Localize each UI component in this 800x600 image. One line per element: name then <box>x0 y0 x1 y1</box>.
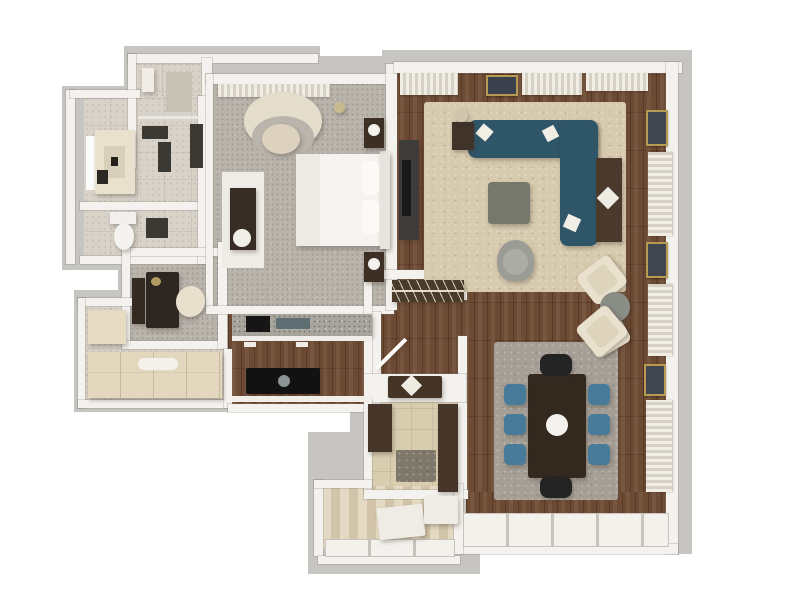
bed-headboard <box>380 151 390 249</box>
picture-dining-right <box>644 364 666 396</box>
hall-cabinet-right <box>438 404 458 492</box>
wall-office-bottom <box>122 341 226 349</box>
shower-bench <box>142 68 154 92</box>
side-table <box>452 122 474 150</box>
cooktop-pot <box>278 375 290 387</box>
hall-cabinet-left <box>368 404 392 452</box>
curtain-right-wall-2 <box>648 284 672 356</box>
wall-living-top <box>394 62 682 73</box>
bottom-room-cabinet <box>424 496 458 524</box>
barrel-chair-cushion <box>503 249 528 275</box>
round-ottoman <box>262 124 300 154</box>
office-cabinet <box>132 278 145 324</box>
kitchenette-upper-cabinet <box>88 310 126 344</box>
bathroom-mirror <box>86 136 95 190</box>
curtain-right-wall-1 <box>648 152 672 236</box>
wall-bottom-room-bottom <box>318 556 460 564</box>
dining-centerpiece <box>546 414 568 436</box>
vanity-stool <box>97 170 108 184</box>
curtain-living-top-2 <box>522 73 582 95</box>
wall-kitchenette-top <box>78 298 134 306</box>
dining-chair-right-3 <box>588 444 610 465</box>
wall-bath-toilet-divider <box>80 202 204 210</box>
bedroom-floor-lamp <box>334 102 345 113</box>
wall-entry-living-lower <box>458 336 467 496</box>
bottom-room-sideboard <box>376 504 425 541</box>
curtain-living-top-1 <box>400 73 458 95</box>
office-desk-lamp <box>151 277 161 286</box>
wall-kitchenette-bottom <box>78 400 230 408</box>
toilet-bowl <box>114 223 134 250</box>
kitchen-appliance <box>276 318 310 329</box>
shower-mat <box>166 72 192 112</box>
curtain-dining-right <box>646 400 672 492</box>
wall-bedroom-left <box>206 74 213 310</box>
kitchenette-dishes <box>138 358 178 370</box>
tv-screen <box>402 160 411 216</box>
art-frame-living-top <box>486 75 518 96</box>
cabinet-handle-2 <box>296 342 308 347</box>
dining-chair-left-2 <box>504 414 526 435</box>
dresser-basket <box>233 229 251 247</box>
window-dining-south <box>464 514 668 546</box>
wall-toilet-bottom <box>80 256 206 264</box>
nightstand-bottom-lamp <box>368 258 380 270</box>
wall-bath-outer-left <box>66 90 75 264</box>
bath-mat-1 <box>142 126 168 139</box>
bed-pillow-2 <box>362 200 379 234</box>
wall-bottom-room-left <box>314 480 323 556</box>
bath-mat-2 <box>158 142 171 172</box>
wall-kitchen-bottom <box>228 404 380 412</box>
picture-right-wall-2 <box>646 242 668 278</box>
picture-right-wall-1 <box>646 110 668 146</box>
wall-kitchenette-left <box>78 298 85 408</box>
window-bottom-room <box>326 540 454 556</box>
wall-kitchenette-right <box>224 349 232 408</box>
toilet-mat <box>146 218 168 238</box>
closet-hanging-rod <box>392 280 464 302</box>
dining-chair-foot <box>540 476 572 498</box>
dining-chair-left-1 <box>504 384 526 405</box>
table-lamp <box>455 109 468 122</box>
wall-bottom-room-top <box>314 480 372 488</box>
nightstand-top-lamp <box>368 124 380 136</box>
cabinet-handle-1 <box>244 342 256 347</box>
dining-chair-right-2 <box>588 414 610 435</box>
rug-hallway <box>396 450 436 482</box>
bath-mat-3 <box>190 124 203 168</box>
kitchen-counter-edge <box>232 336 372 341</box>
espresso-machine <box>246 316 270 332</box>
vanity-faucet <box>111 157 118 166</box>
kitchen-south-edge <box>232 396 372 402</box>
curtain-living-top-3 <box>586 73 648 91</box>
wall-bedroom-top <box>206 74 396 84</box>
dining-chair-head <box>540 354 572 376</box>
bed-blanket-fold <box>296 154 320 246</box>
coffee-ottoman <box>488 182 530 224</box>
shower-glass-panel <box>138 116 202 119</box>
dining-chair-right-1 <box>588 384 610 405</box>
wall-shower-top <box>128 54 318 63</box>
bed-pillow-1 <box>362 161 379 195</box>
floor-plan <box>0 0 800 600</box>
dining-chair-left-3 <box>504 444 526 465</box>
wall-vanity-top <box>70 90 140 98</box>
